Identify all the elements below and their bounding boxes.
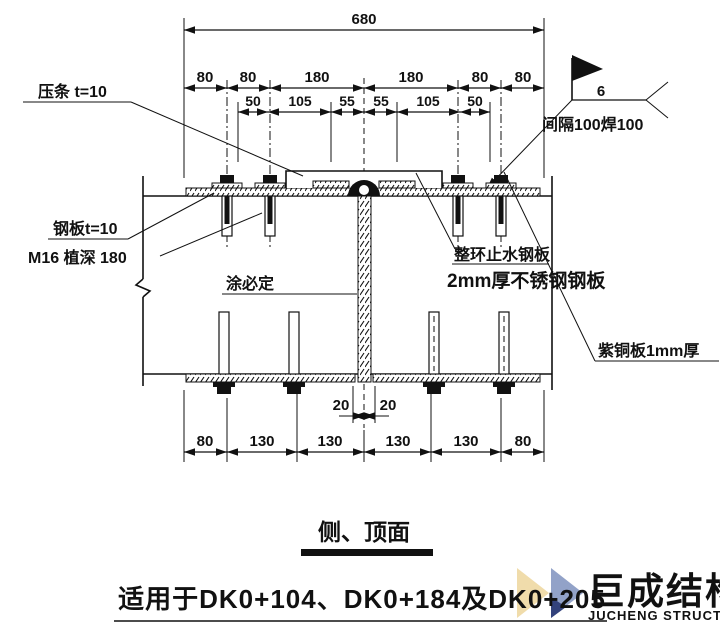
watermark-cn-text: 巨成结构 [588, 571, 720, 612]
engineering-drawing-svg: 巨成结构 JUCHENG STRUCTURE 680 80 80 180 180… [0, 0, 720, 628]
dim-bottom-3: 130 [385, 433, 410, 450]
anchor-sleeve [289, 312, 299, 374]
bolt-pad [443, 183, 473, 188]
dim-row2-2: 180 [304, 69, 329, 86]
weld-size-text: 6 [597, 83, 605, 100]
bolt-head [263, 175, 277, 183]
bolt-nut [287, 387, 301, 394]
sealant-label: 涂必定 [226, 274, 274, 293]
bottom-steel-plate [373, 374, 540, 382]
bottom-steel-plate [186, 374, 355, 382]
dim-bottom-4: 130 [453, 433, 478, 450]
drawing-page: 巨成结构 JUCHENG STRUCTURE 680 80 80 180 180… [0, 0, 720, 628]
top-anchor-bolt [486, 175, 516, 236]
waterstop-label-line2: 2mm厚不锈钢钢板 [447, 269, 606, 292]
drawing-title: 侧、顶面 [301, 519, 433, 556]
top-anchor-bolt [443, 175, 473, 236]
title-text: 侧、顶面 [318, 519, 410, 545]
dim-row2-0: 80 [197, 69, 214, 86]
bolt-head [220, 175, 234, 183]
dim-row3-5: 50 [467, 93, 483, 109]
applicability-note: 适用于DK0+104、DK0+184及DK0+205 [114, 584, 607, 621]
bolt-washer [493, 382, 515, 387]
dim-row2-3: 180 [398, 69, 423, 86]
dim-joint-1: 20 [380, 397, 397, 414]
anchor-rod [456, 196, 461, 224]
anchor-rod [225, 196, 230, 224]
top-anchor-bolt [212, 175, 242, 236]
anchor-sleeve [219, 312, 229, 374]
top-anchor-bolt [255, 175, 285, 236]
field-weld-flag-icon [572, 55, 603, 81]
note-text: 适用于DK0+104、DK0+184及DK0+205 [118, 584, 606, 614]
bolt-pad [212, 183, 242, 188]
title-underline [301, 549, 433, 556]
dim-bottom-0: 80 [197, 433, 214, 450]
weld-note-text: 间隔100焊100 [542, 115, 643, 134]
leader-line [128, 193, 214, 239]
leader-line [504, 172, 595, 361]
dim-row3-1: 105 [288, 93, 312, 109]
waterstop-label-line1: 整环止水钢板 [453, 245, 551, 264]
dim-bottom-5: 80 [515, 433, 532, 450]
dim-row2-5: 80 [515, 69, 532, 86]
bolt-pad [255, 183, 285, 188]
bolt-washer [213, 382, 235, 387]
bolt-washer [283, 382, 305, 387]
leader-line [131, 102, 303, 176]
dim-row3-0: 50 [245, 93, 261, 109]
anchor-rod [268, 196, 273, 224]
anchor-label: M16 植深 180 [28, 248, 127, 267]
joint-filler-strip [358, 196, 371, 382]
dim-row2-4: 80 [472, 69, 489, 86]
cover-pad [379, 181, 415, 188]
bolt-nut [497, 387, 511, 394]
dim-joint-0: 20 [333, 397, 350, 414]
bolt-head [451, 175, 465, 183]
watermark-en-text: JUCHENG STRUCTURE [588, 608, 720, 623]
bolt-nut [217, 387, 231, 394]
dim-overall: 680 [351, 11, 376, 28]
bolt-nut [427, 387, 441, 394]
dim-row3-3: 55 [373, 93, 389, 109]
dim-row2-1: 80 [240, 69, 257, 86]
weld-tail [646, 82, 668, 100]
weld-arrow [487, 100, 572, 188]
pressure-strip-label: 压条 t=10 [38, 82, 107, 101]
dim-row3-4: 105 [416, 93, 440, 109]
dim-bottom-1: 130 [249, 433, 274, 450]
dim-row3-2: 55 [339, 93, 355, 109]
dimensions-bottom: 20 20 80 130 130 130 130 80 [184, 384, 544, 462]
leader-line [160, 213, 262, 256]
anchor-rod [499, 196, 504, 224]
bolt-washer [423, 382, 445, 387]
copper-plate-label: 紫铜板1mm厚 [598, 341, 699, 360]
steel-plate-label: 钢板t=10 [53, 219, 118, 238]
break-symbol [136, 279, 150, 297]
weld-tail [646, 100, 668, 118]
dim-bottom-2: 130 [317, 433, 342, 450]
cover-pad [313, 181, 349, 188]
waterstop-dome-hole [359, 185, 369, 195]
